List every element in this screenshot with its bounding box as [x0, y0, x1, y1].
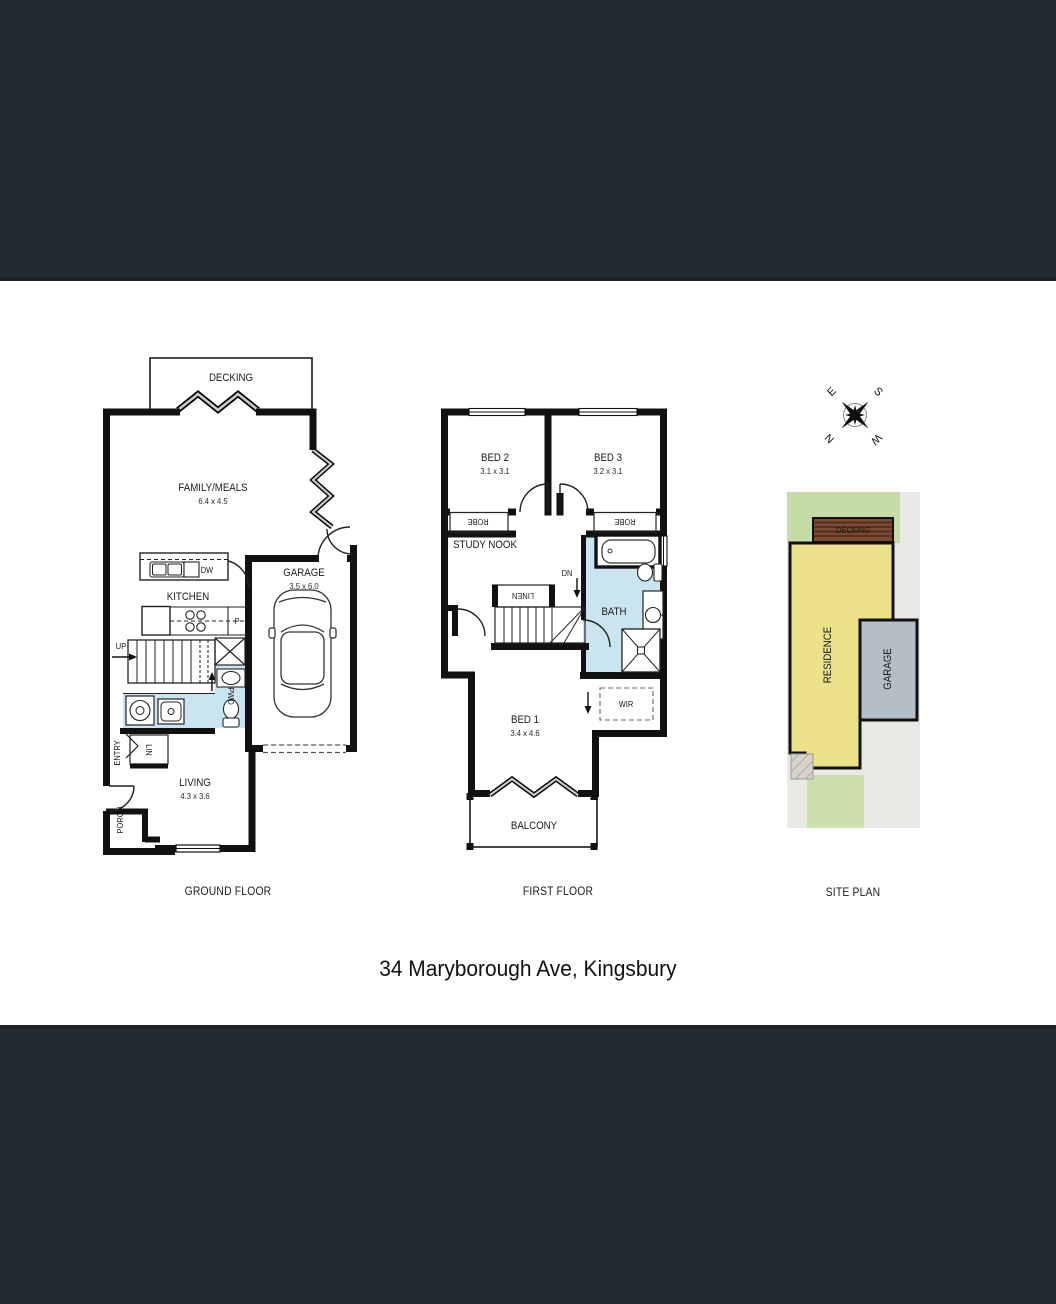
stacker-door-icon	[178, 394, 258, 410]
car-icon	[269, 590, 336, 717]
pantry-label: P	[235, 616, 240, 626]
stairs-icon	[495, 607, 585, 643]
site-plan-svg	[787, 492, 920, 828]
cooktop-icon	[186, 611, 205, 631]
window-icon	[176, 845, 220, 852]
compass-icon	[810, 376, 900, 460]
address-text: 34 Maryborough Ave, Kingsbury	[379, 956, 676, 982]
bed2-dims: 3.1 x 3.1	[480, 466, 509, 476]
sink-icon	[150, 562, 184, 577]
balcony-label: BALCONY	[511, 820, 557, 832]
bed2-label: BED 2	[481, 452, 509, 464]
robe-left-label: ROBE	[467, 517, 488, 527]
lin-label: LIN	[144, 744, 154, 756]
toilet-icon	[638, 564, 663, 581]
study-nook-label: STUDY NOOK	[453, 539, 517, 551]
living-dims: 4.3 x 3.6	[180, 791, 209, 801]
stairs-icon	[128, 640, 215, 683]
site-decking-label: DECKING	[836, 525, 870, 535]
bed3-dims: 3.2 x 3.1	[593, 466, 622, 476]
balcony	[467, 779, 598, 850]
garage-label: GARAGE	[283, 567, 324, 579]
family-meals-label: FAMILY/MEALS	[178, 482, 247, 494]
bed1-label: BED 1	[511, 714, 539, 726]
bottom-dark-band	[0, 1025, 1056, 1304]
first-floor-svg	[438, 395, 670, 873]
kitchen-bench	[142, 607, 247, 636]
linen-label: LINEN	[512, 591, 534, 601]
dn-label: DN	[562, 568, 573, 578]
shower-icon	[622, 629, 660, 672]
garage-door-icon	[263, 744, 346, 754]
ground-floor-title: GROUND FLOOR	[185, 886, 272, 898]
garage-dims: 3.5 x 6.0	[289, 581, 318, 591]
site-plan-title: SITE PLAN	[826, 887, 881, 899]
site-porch-hatch	[791, 754, 813, 779]
site-residence-label: RESIDENCE	[822, 627, 834, 683]
hall-arrow-icon	[585, 692, 592, 714]
up-arrow-icon	[112, 654, 137, 661]
bathtub-icon	[596, 535, 660, 567]
ground-floor-svg	[100, 350, 370, 870]
ground-floor-plan: DECKING FAMILY/MEALS 6.4 x 4.5 KITCHEN D…	[100, 350, 370, 870]
porch-label: PORCH	[115, 806, 125, 833]
site-grass-bottom	[807, 775, 864, 828]
wir-label: WIR	[619, 699, 634, 709]
up-label: UP	[116, 641, 126, 651]
bath-label: BATH	[601, 606, 626, 618]
robe-right-label: ROBE	[614, 517, 635, 527]
top-dark-band	[0, 0, 1056, 281]
kitchen-island	[140, 553, 228, 580]
first-floor-title: FIRST FLOOR	[523, 886, 593, 898]
floorplan-sheet: { "ground": { "title": "GROUND FLOOR", "…	[0, 0, 1056, 1304]
dishwasher-icon	[184, 562, 199, 577]
bed1-dims: 3.4 x 4.6	[510, 728, 539, 738]
pwd-label: PWD	[226, 687, 236, 704]
first-floor-plan: BED 2 3.1 x 3.1 BED 3 3.2 x 3.1 ROBE ROB…	[438, 395, 670, 873]
living-label: LIVING	[179, 777, 211, 789]
decking-label: DECKING	[209, 372, 253, 384]
dn-arrow-icon	[574, 578, 581, 598]
family-meals-dims: 6.4 x 4.5	[198, 496, 227, 506]
bedroom-doors	[520, 484, 588, 512]
compass: E S N W	[810, 376, 900, 460]
zigzag-window-icon	[313, 450, 332, 527]
kitchen-label: KITCHEN	[167, 591, 209, 603]
address-title: 34 Maryborough Ave, Kingsbury	[0, 956, 1056, 982]
entry-label: ENTRY	[112, 740, 122, 765]
dishwasher-label: DW	[201, 565, 213, 575]
site-plan: DECKING RESIDENCE GARAGE	[787, 492, 920, 828]
understair-void	[215, 638, 245, 665]
bed3-label: BED 3	[594, 452, 622, 464]
site-garage-label: GARAGE	[882, 648, 894, 689]
basin-icon	[222, 672, 240, 685]
